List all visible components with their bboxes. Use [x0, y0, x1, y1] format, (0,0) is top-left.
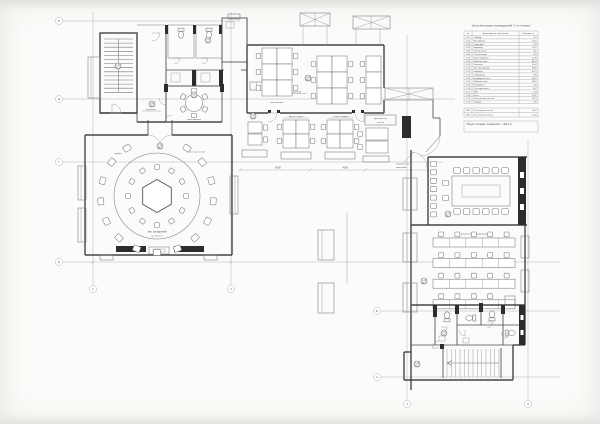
room-number: 1.14 [466, 81, 471, 83]
chair [192, 113, 197, 118]
toilet-icon [489, 311, 495, 321]
hexagon-table [143, 180, 172, 213]
room-number: 1.09 [466, 64, 471, 66]
toilet-bowl [489, 311, 494, 318]
chair [454, 209, 461, 215]
desk [327, 134, 340, 148]
desk [366, 141, 388, 153]
room-tag-area: 18,9 [150, 106, 154, 108]
chair [488, 232, 493, 237]
room-name: Гардероб [474, 43, 485, 46]
chair [358, 131, 363, 136]
chair [98, 198, 104, 206]
room-area: 15,3 [532, 98, 537, 100]
room-name: Переговорная [474, 57, 490, 59]
room-name: КУИ [474, 91, 479, 93]
room-name: Конференц-зал [474, 78, 491, 80]
room-area: 8,2 [533, 88, 537, 90]
bay-window [88, 57, 100, 98]
chair [471, 232, 476, 237]
chair [311, 61, 316, 66]
room-name: Тамбур [474, 36, 482, 39]
chair [439, 253, 444, 258]
pilaster [204, 255, 217, 260]
scanned-floor-plan-page: Экспликация помещений 1-го этажа Общая п… [0, 0, 600, 424]
chair [492, 168, 499, 174]
chair [431, 212, 437, 217]
wall-fill [193, 25, 196, 34]
room-name: С/у персонала [474, 88, 490, 90]
chair [502, 209, 509, 215]
niche [521, 315, 524, 320]
room-area: 15,8 [532, 115, 537, 117]
desk [340, 120, 353, 134]
chair [463, 209, 470, 215]
annotation-line-1: направление [396, 164, 410, 166]
chair [431, 178, 437, 183]
toilet-icon [444, 312, 450, 322]
room-tag-area: 15,3 [116, 68, 120, 70]
grid-bubble-label: А [376, 375, 378, 379]
room-area: 2,8 [533, 102, 537, 104]
room-name: Лестничная клетка [474, 98, 495, 100]
chair [471, 294, 476, 299]
chair [203, 217, 211, 226]
desk [262, 64, 277, 80]
annotation-line-2: эвакуации [396, 167, 407, 169]
room-tag-number: 1.19 [116, 64, 120, 66]
chair [179, 207, 185, 214]
door-swing [432, 341, 439, 348]
desk [366, 56, 381, 72]
rect [206, 28, 212, 31]
chair [311, 77, 316, 82]
desk [332, 72, 347, 88]
chair [155, 165, 160, 170]
room-area: 12,1 [532, 95, 537, 97]
room-tag-number: 1.18 [415, 362, 419, 364]
room-number: 1.20 [466, 102, 471, 104]
door-swing [202, 58, 208, 64]
toilet-bowl [444, 312, 449, 319]
room-number: 1.05 [466, 51, 471, 53]
chair [256, 85, 261, 90]
chair [504, 232, 509, 237]
door-swing [355, 113, 364, 122]
wardrobe-label: гардероб [291, 91, 302, 94]
chair [431, 162, 437, 167]
chair [190, 233, 199, 242]
sink [463, 338, 469, 343]
room-name: Лестничная клетка [474, 110, 493, 112]
room-tag-area: 86,4 [306, 80, 310, 82]
wall-fill [519, 305, 525, 345]
wall-fill [501, 305, 505, 314]
toilet-bowl [508, 330, 515, 335]
dimension-value-2: 4500 [342, 167, 348, 170]
floor-plan-svg: Экспликация помещений 1-го этажа Общая п… [0, 0, 600, 424]
room-name: С/у женский [474, 53, 488, 56]
chair [180, 106, 186, 113]
grid-bubble-label: Б [376, 309, 378, 313]
chair [310, 124, 315, 129]
chair [168, 218, 175, 224]
room-number: ЛК1 [466, 110, 471, 112]
bay-window [403, 178, 417, 210]
desk [366, 128, 388, 140]
cabinet [242, 150, 267, 157]
chair [455, 253, 460, 258]
explication-table: №Наименование помещенияПлощадь, м²1.01Та… [464, 31, 538, 132]
chair [321, 138, 326, 143]
chair [321, 124, 326, 129]
head-desk-label-2: отдела [377, 122, 384, 124]
bank-a-label: менеджеры [270, 102, 283, 104]
chair [154, 250, 161, 256]
room-tag-number: 1.13 [446, 212, 450, 214]
equipment [171, 73, 180, 82]
bay-window [403, 233, 417, 262]
chair [473, 168, 480, 174]
room-number: 1.18 [466, 95, 471, 97]
wall-fill [219, 25, 222, 34]
room-area: 3,2 [533, 37, 537, 39]
chair [454, 168, 461, 174]
chair [310, 138, 315, 143]
room-name: Лестничная клетка [474, 115, 493, 117]
door-swing [411, 152, 427, 168]
wc-room [168, 25, 194, 58]
chair [348, 77, 353, 82]
room-area: 38,2 [532, 78, 537, 80]
chair [99, 177, 106, 185]
room-tag-number: 1.16 [442, 331, 446, 333]
explication-note: Общая площадь помещений — 482,2 м² [467, 123, 513, 126]
wall-fill [220, 84, 224, 92]
toilet-bowl [466, 315, 473, 320]
chair [483, 168, 490, 174]
chair [311, 93, 316, 98]
room-number: 1.10 [466, 68, 471, 70]
chair [488, 273, 493, 278]
wall-fill [455, 305, 459, 314]
chair [455, 273, 460, 278]
small-meeting-label: переговорная [187, 119, 201, 121]
table-header: № [467, 32, 469, 35]
table-header: Площадь, м² [523, 32, 535, 35]
room-number: 1.04 [466, 47, 471, 49]
cluster-1-label: бухгалтерия [289, 115, 304, 118]
wall-fill [219, 70, 223, 86]
door-swing [112, 104, 121, 113]
toilet-icon [466, 315, 476, 321]
desk [296, 134, 309, 148]
meeting-room-small [164, 84, 224, 122]
sink [439, 336, 445, 341]
chair [471, 273, 476, 278]
chair [443, 181, 449, 186]
dimension-value-1: 6000 [275, 167, 281, 170]
wc-block [411, 303, 525, 345]
wall-fill [433, 305, 437, 317]
chair [354, 138, 359, 143]
chair [354, 124, 359, 129]
desk [317, 56, 332, 72]
desk [248, 134, 262, 145]
room-name: Коридор [474, 71, 484, 73]
chair [210, 198, 216, 206]
chair [439, 232, 444, 237]
chair [129, 178, 135, 185]
rect [473, 315, 476, 321]
room-name: Зал заседаний [474, 67, 490, 70]
chair [114, 233, 123, 242]
chair [360, 61, 365, 66]
exterior-bay [318, 230, 334, 260]
chair [471, 253, 476, 258]
room-area: 14,2 [532, 64, 537, 66]
grid-bubble-label: В [58, 260, 60, 264]
niche [521, 330, 524, 335]
desk-row [433, 259, 515, 268]
open-office-top [247, 45, 384, 122]
staircase-bottom-right [404, 341, 513, 382]
wall-fill [277, 110, 280, 113]
desk [366, 88, 381, 104]
chair [168, 168, 175, 174]
chair [360, 93, 365, 98]
rect [444, 319, 450, 322]
room-name: Холл [474, 95, 480, 97]
desk [262, 80, 277, 96]
room-tag-number: 1.08 [306, 76, 310, 78]
room-tag-number: 1.04 [150, 102, 154, 104]
room-name: Коридор [474, 47, 484, 49]
room-name: Рабочая зона [474, 80, 489, 83]
wall-fill [352, 110, 355, 113]
wall-fill [268, 110, 271, 113]
room-area: 42,3 [532, 71, 537, 73]
room-area: 6,8 [533, 74, 537, 76]
room-area: 18,9 [532, 47, 537, 49]
room-number: 1.12 [466, 74, 471, 76]
cabinet [281, 152, 311, 159]
bay-window [403, 283, 417, 312]
chair [502, 168, 509, 174]
room-number: 1.19 [466, 98, 471, 100]
chair [463, 168, 470, 174]
hall-right-label: места делегатов [189, 152, 205, 154]
desk [283, 134, 296, 148]
rect [226, 22, 234, 28]
wall-fill [165, 25, 168, 34]
room-tag-area: 4,1 [207, 42, 210, 44]
room-area: 4,1 [533, 51, 537, 53]
door-swing [501, 332, 507, 338]
desk [283, 120, 296, 134]
desk-row [433, 279, 515, 288]
room-name: Тамбур [474, 101, 482, 104]
corner-room [222, 18, 247, 62]
chair [102, 217, 110, 226]
chair [277, 138, 282, 143]
room-area: 86,4 [532, 61, 537, 63]
cluster-2-label: отдел кадров [334, 116, 350, 118]
wall-fill [440, 344, 444, 349]
room-area: 7,4 [533, 44, 537, 46]
wall-fill [192, 70, 196, 86]
toilet-icon [206, 28, 212, 38]
store-room [196, 70, 222, 86]
room-name: Ресепшн [474, 64, 484, 66]
round-hall-seats-label: на 26 мест [151, 235, 163, 237]
room-tag-area: 38,2 [446, 216, 450, 218]
room-tag-number: 1.07 [192, 93, 196, 95]
chair [263, 125, 268, 130]
chair [455, 294, 460, 299]
wall-fill [361, 110, 364, 113]
desk [277, 64, 292, 80]
round-hall-label: зал заседаний [147, 230, 167, 234]
assembly-hall [78, 120, 238, 260]
door-swing [174, 58, 180, 64]
room-tag-number: 1.02 [251, 114, 255, 116]
equipment [201, 73, 210, 82]
desk [248, 122, 262, 133]
desk [262, 48, 277, 64]
cabinet [363, 156, 389, 162]
room-tag-area: 8,2 [443, 335, 446, 337]
room-tag-number: 1.05 [206, 38, 210, 40]
toilet-bowl [178, 31, 183, 38]
room-name: Кладовая [474, 85, 485, 87]
desk [332, 88, 347, 104]
room-area: 4,3 [533, 54, 537, 56]
chair [129, 207, 135, 214]
chair [123, 144, 132, 153]
room-tag-area: 64,5 [422, 283, 426, 285]
chair [455, 232, 460, 237]
rect [505, 330, 508, 336]
chair [443, 196, 449, 201]
desk [296, 120, 309, 134]
conference-table [452, 176, 510, 206]
room-name: Рабочая зона [474, 60, 489, 63]
room-name: Серверная [474, 74, 486, 76]
chair [293, 53, 298, 58]
conference-room [411, 157, 527, 225]
chair [107, 158, 116, 167]
door-swing [268, 113, 277, 122]
toilet-icon [178, 28, 184, 38]
wall-fill [402, 116, 411, 138]
chair [431, 204, 437, 209]
chair [439, 273, 444, 278]
room-area: 16,2 [532, 110, 537, 112]
room-number: 1.11 [466, 71, 471, 73]
room-area: 3,6 [533, 85, 537, 87]
room-number: 1.15 [466, 85, 471, 87]
room-name: С/у мужской [474, 50, 488, 53]
leader-line [404, 152, 414, 162]
room-number: 1.01 [466, 37, 471, 39]
room-area: 64,5 [532, 81, 537, 83]
chair [256, 53, 261, 58]
room-tag-area: 98,6 [158, 148, 162, 150]
toilet-icon [505, 330, 515, 336]
chair [473, 209, 480, 215]
desk [327, 120, 340, 134]
desk [317, 72, 332, 88]
table-inlay [462, 185, 500, 197]
chair [488, 253, 493, 258]
chair [504, 253, 509, 258]
chair [492, 209, 499, 215]
room-area: 22,6 [532, 40, 537, 42]
exterior-bay [318, 283, 334, 313]
desk-row [433, 238, 515, 247]
rect [489, 318, 495, 321]
open-office-right [433, 232, 515, 309]
chair [202, 106, 208, 113]
chair [139, 168, 146, 174]
room-number: 1.02 [466, 40, 471, 42]
door-swing [420, 136, 440, 156]
chair [208, 177, 215, 185]
desk [332, 56, 347, 72]
chair [263, 137, 268, 142]
room-number: 1.13 [466, 78, 471, 80]
explication-title: Экспликация помещений 1-го этажа [472, 24, 530, 28]
chair [277, 124, 282, 129]
room-name: Вестибюль [474, 39, 486, 42]
chair [504, 273, 509, 278]
chair [179, 178, 185, 185]
desk [340, 134, 353, 148]
chair [360, 77, 365, 82]
cabinet [325, 152, 355, 159]
room-area: 2,4 [533, 91, 537, 93]
chair [358, 144, 363, 149]
door-swing [152, 33, 160, 41]
chair [483, 209, 490, 215]
rect [178, 28, 184, 31]
niche [520, 172, 524, 178]
room-tag-number: 1.10 [158, 144, 162, 146]
room-tag-area: 12,8 [192, 97, 196, 99]
wall-fill [479, 303, 483, 312]
chair [431, 195, 437, 200]
room-number: 1.16 [466, 88, 471, 90]
chair [139, 218, 146, 224]
desk [277, 48, 292, 64]
chair [348, 93, 353, 98]
chair [431, 170, 437, 175]
room-number: ЛК2 [466, 115, 471, 117]
reception-label: ресепшн [146, 109, 156, 111]
niche [520, 188, 524, 194]
table-header: Наименование помещения [483, 33, 509, 35]
desk [366, 72, 381, 88]
room-tag-area: 12,1 [415, 366, 419, 368]
room-area: 12,8 [532, 57, 537, 59]
courtyard-elements [318, 212, 347, 313]
grid-bubble-label: Д [58, 97, 60, 101]
chair [198, 158, 207, 167]
hall-left-label: трибуна [114, 152, 122, 155]
chair [431, 187, 437, 192]
door-swing [459, 330, 465, 336]
